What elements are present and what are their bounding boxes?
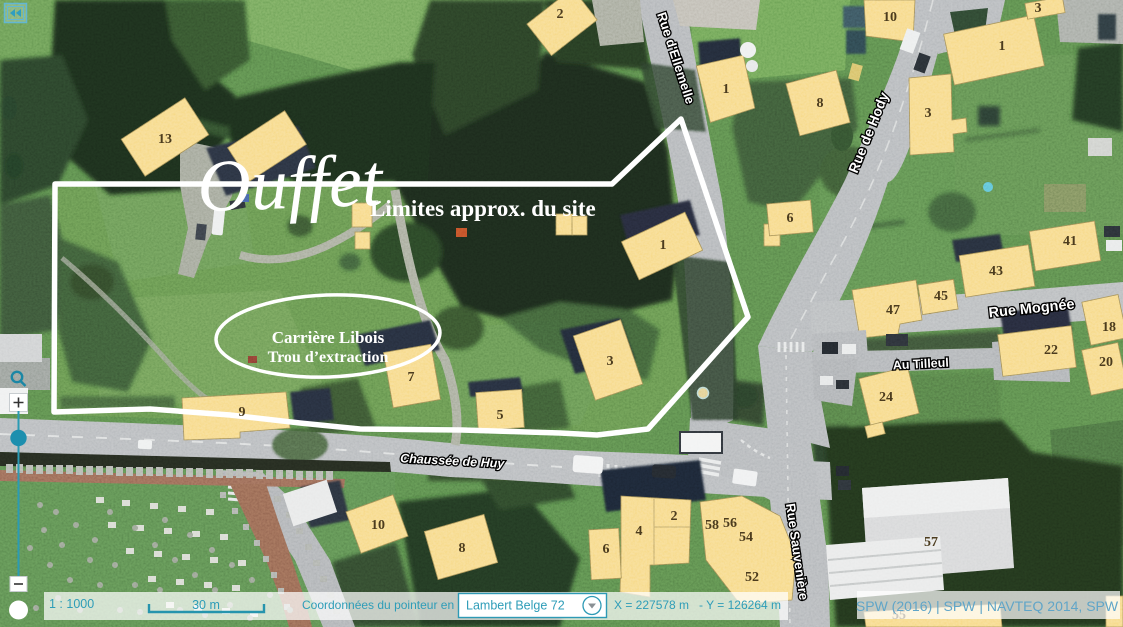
- svg-text:Lambert Belge 72: Lambert Belge 72: [466, 599, 565, 613]
- svg-text:58: 58: [705, 518, 719, 533]
- svg-text:1: 1: [723, 82, 730, 97]
- svg-text:Coordonnées du pointeur en: Coordonnées du pointeur en: [302, 598, 454, 612]
- svg-text:X = 227578 m - Y = 126264: X = 227578 m - Y = 126264 m: [614, 598, 781, 612]
- svg-text:8: 8: [459, 541, 466, 556]
- svg-text:56: 56: [723, 516, 737, 531]
- svg-text:22: 22: [1044, 343, 1058, 358]
- svg-text:57: 57: [924, 535, 938, 550]
- svg-text:30 m: 30 m: [192, 598, 220, 612]
- svg-text:20: 20: [1099, 355, 1113, 370]
- svg-text:1 : 1000: 1 : 1000: [49, 597, 94, 611]
- svg-text:45: 45: [934, 289, 948, 304]
- svg-text:4: 4: [636, 524, 643, 539]
- svg-text:18: 18: [1102, 320, 1116, 335]
- svg-text:7: 7: [408, 370, 415, 385]
- svg-text:47: 47: [886, 303, 900, 318]
- svg-text:3: 3: [1035, 1, 1042, 16]
- svg-text:1: 1: [999, 39, 1006, 54]
- svg-text:Ouffet: Ouffet: [196, 140, 386, 228]
- svg-text:Carrière Libois: Carrière Libois: [272, 328, 385, 347]
- svg-text:43: 43: [989, 264, 1003, 279]
- svg-text:Trou d’extraction: Trou d’extraction: [268, 349, 389, 366]
- svg-text:8: 8: [817, 96, 824, 111]
- svg-text:SPW (2016) | SPW | NAVTEQ 2014: SPW (2016) | SPW | NAVTEQ 2014, SPW: [856, 598, 1119, 614]
- svg-text:10: 10: [371, 518, 385, 533]
- svg-text:52: 52: [745, 570, 759, 585]
- svg-text:Au Tilleul: Au Tilleul: [892, 356, 949, 373]
- svg-text:24: 24: [879, 390, 893, 405]
- svg-text:54: 54: [739, 530, 753, 545]
- svg-text:Limites approx. du site: Limites approx. du site: [370, 196, 596, 221]
- svg-text:2: 2: [671, 509, 678, 524]
- svg-text:2: 2: [557, 7, 564, 22]
- svg-text:10: 10: [883, 10, 897, 25]
- svg-text:3: 3: [925, 106, 932, 121]
- svg-text:6: 6: [787, 211, 794, 226]
- svg-text:1: 1: [660, 238, 667, 253]
- svg-text:6: 6: [603, 542, 610, 557]
- svg-text:13: 13: [158, 132, 172, 147]
- svg-text:41: 41: [1063, 234, 1077, 249]
- svg-text:3: 3: [607, 354, 614, 369]
- svg-text:9: 9: [239, 405, 246, 420]
- svg-text:5: 5: [497, 408, 504, 423]
